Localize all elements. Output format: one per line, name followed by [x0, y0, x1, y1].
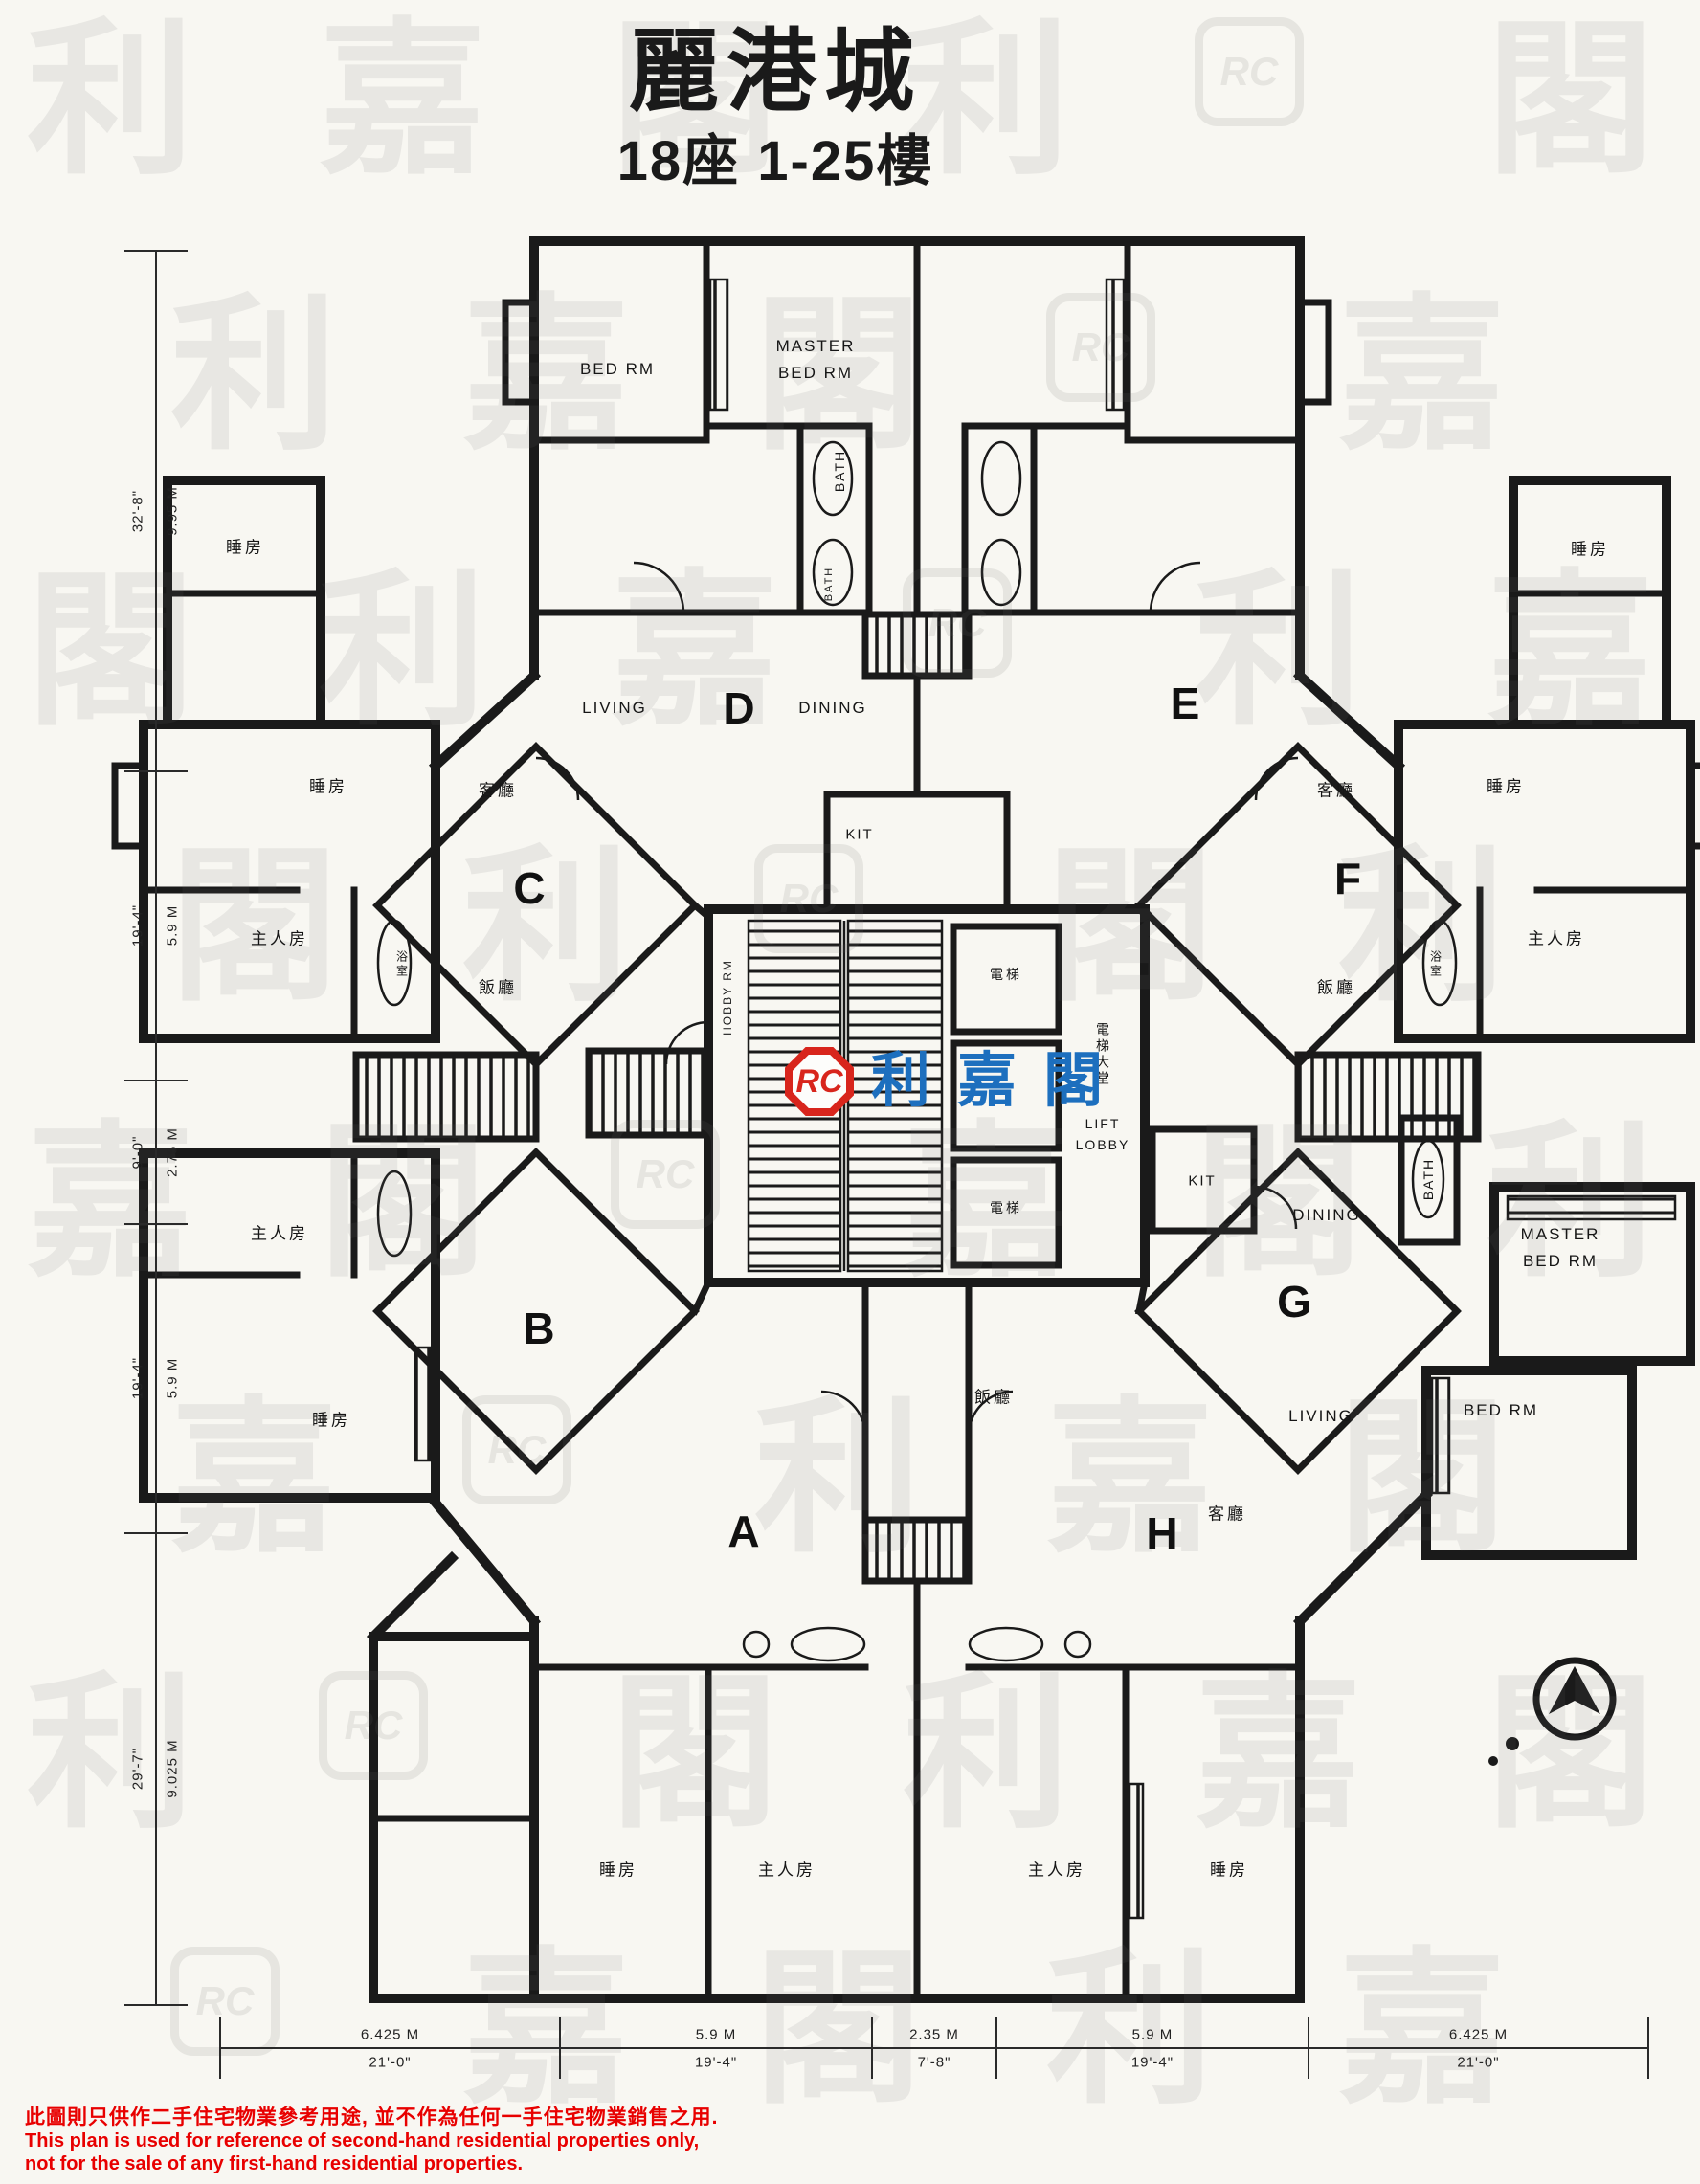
- compass-icon: [1488, 1660, 1613, 1766]
- brand-logo-name: 利嘉閣: [871, 1052, 1130, 1111]
- title-block: 麗港城 18座 1-25樓: [617, 25, 934, 196]
- disclaimer-line-cn: 此圖則只供作二手住宅物業參考用途, 並不作為任何一手住宅物業銷售之用.: [25, 2106, 719, 2129]
- floor-plan-page: 利嘉閣利RC閣利嘉閣RC嘉閣利嘉RC利嘉閣利RC閣利嘉閣RC嘉閣利嘉RC利嘉閣利…: [0, 0, 1700, 2184]
- disclaimer-line-en2: not for the sale of any first-hand resid…: [25, 2152, 719, 2175]
- brand-logo-monogram: RC: [785, 1047, 854, 1116]
- disclaimer: 此圖則只供作二手住宅物業參考用途, 並不作為任何一手住宅物業銷售之用. This…: [25, 2106, 719, 2175]
- page-title: 麗港城: [617, 25, 934, 120]
- brand-logo-icon: RC: [785, 1047, 854, 1116]
- page-subtitle: 18座 1-25樓: [617, 116, 934, 196]
- brand-logo: RC 利嘉閣: [785, 1047, 1130, 1116]
- disclaimer-line-en1: This plan is used for reference of secon…: [25, 2129, 719, 2152]
